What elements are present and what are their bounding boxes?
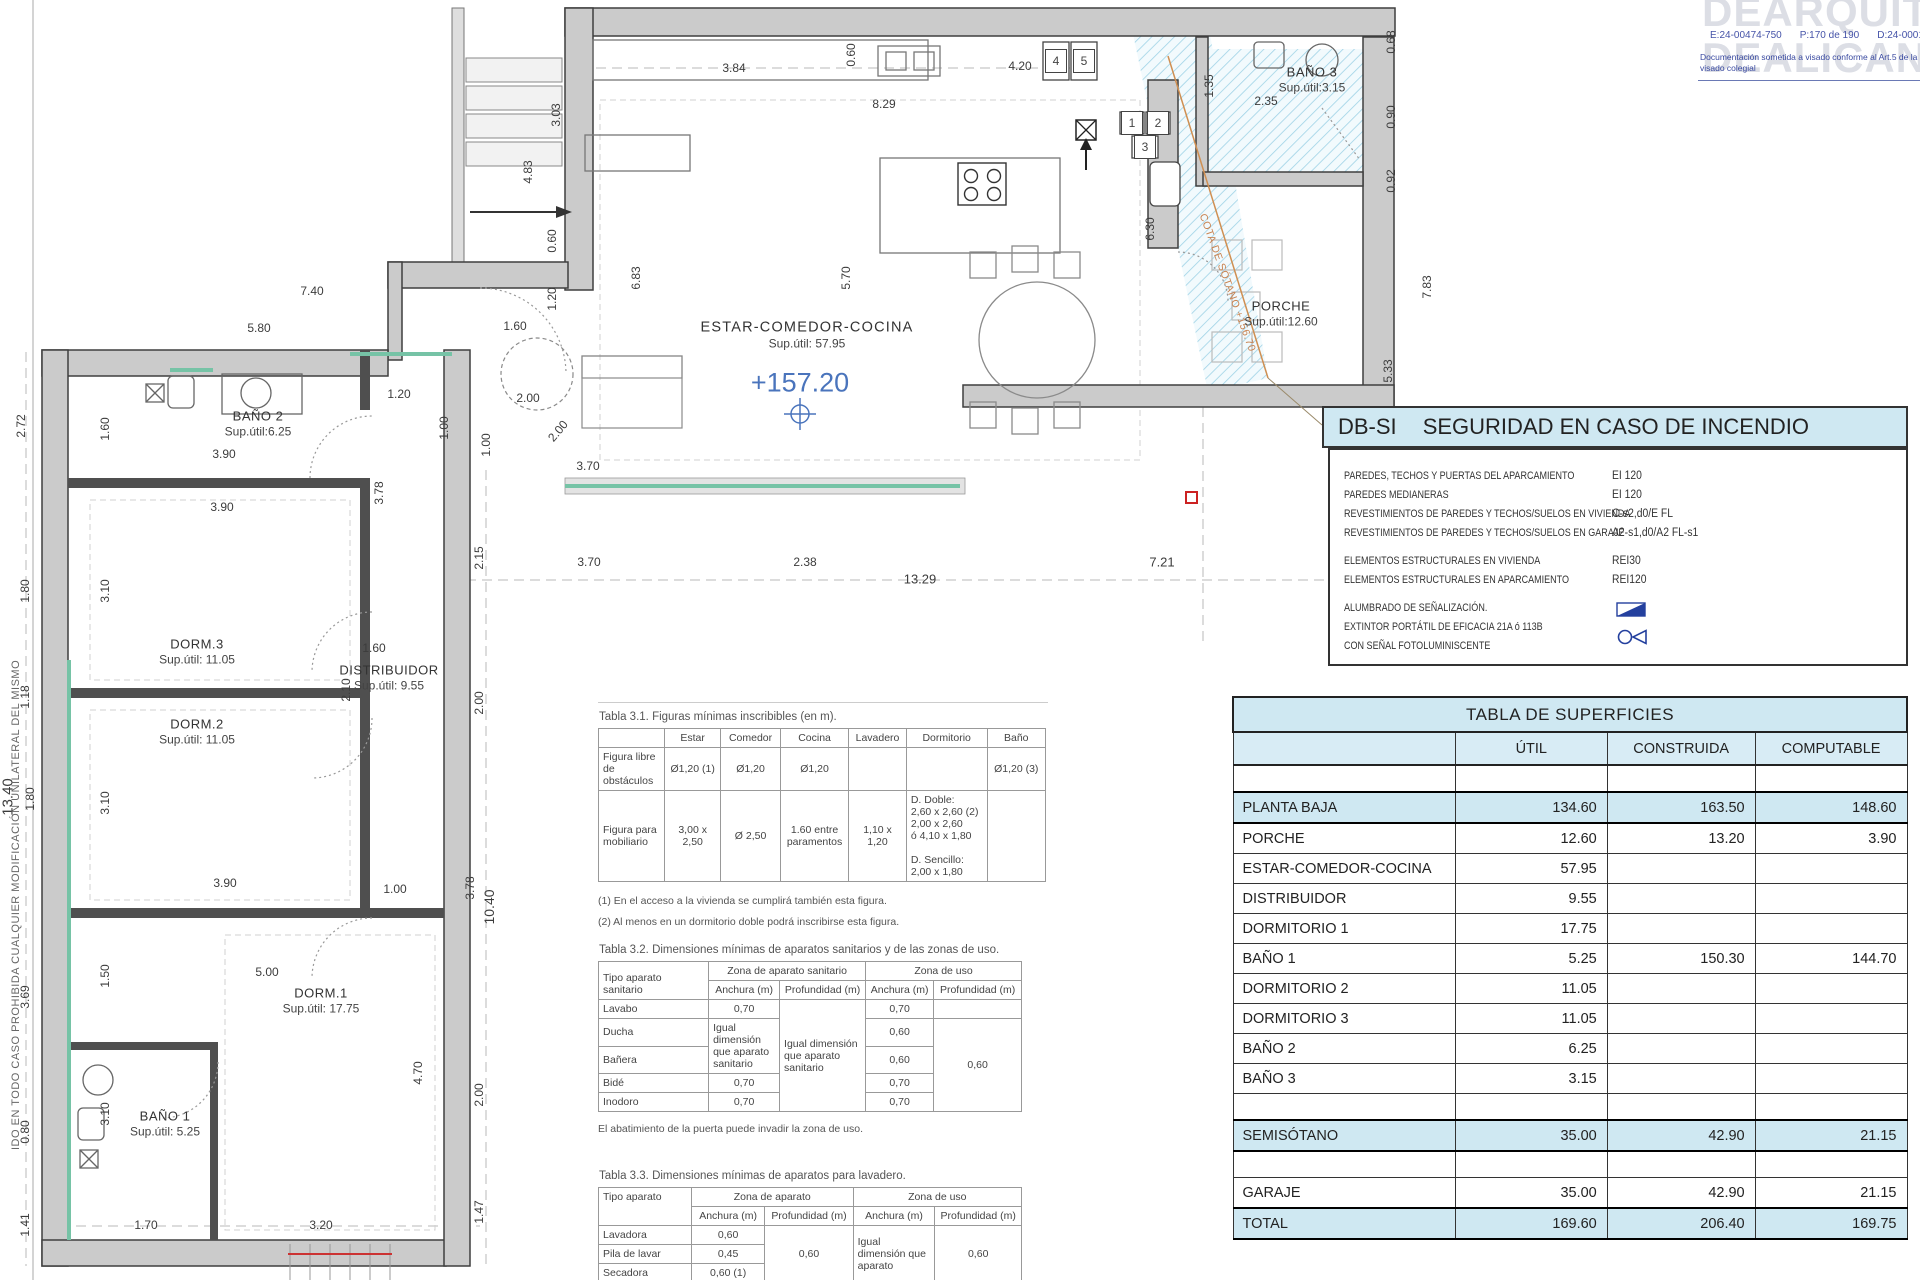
dbsi-code: DB-SI [1338,414,1397,440]
room-label: BAÑO 3Sup.útil:3.15 [1279,64,1346,95]
room-label: BAÑO 2Sup.útil:6.25 [225,408,292,439]
room-area: Sup.útil: 57.95 [700,337,913,352]
room-area: Sup.útil:3.15 [1279,81,1346,96]
dbsi-row: REVESTIMIENTOS DE PAREDES Y TECHOS/SUELO… [1344,527,1906,546]
room-name: BAÑO 3 [1279,64,1346,80]
room-label: BAÑO 1Sup.útil: 5.25 [130,1108,200,1139]
legal-margin-text: IDO EN TODO CASO PROHIBIDA CUALQUIER MOD… [10,660,22,1150]
dimension-label: 0.60 [545,229,559,252]
dbsi-row: CON SEÑAL FOTOLUMINISCENTE [1344,640,1906,659]
dimension-label: 7.83 [1420,275,1434,298]
dimension-label: 0.92 [1384,169,1398,192]
dimension-label: 4.70 [411,1061,425,1084]
visa-note-2: visado colegial [1700,63,1920,74]
dimension-label: 1.00 [437,416,451,439]
appliance-number-tag: 3 [1134,135,1156,159]
dimension-label: 1.80 [23,787,37,810]
dimension-label: 1.60 [362,641,385,655]
table-row: PLANTA BAJA134.60163.50148.60 [1233,792,1907,823]
table-row: DISTRIBUIDOR9.55 [1233,884,1907,914]
table-row: GARAJE35.0042.9021.15 [1233,1178,1907,1209]
dimension-label: 2.38 [793,555,816,569]
dimension-label: 3.10 [98,791,112,814]
dimension-label: 3.90 [212,447,235,461]
col-util: ÚTIL [1455,732,1607,765]
room-name: DORM.1 [283,985,360,1001]
code-p: P:170 de 190 [1800,30,1860,41]
stove-icon [958,163,1006,205]
level-crosshair [784,398,816,430]
room-label: DORM.3Sup.útil: 11.05 [159,636,235,667]
tabla-3-2-title: Tabla 3.2. Dimensiones mínimas de aparat… [599,944,1024,956]
dimension-label: 2.00 [472,691,486,714]
dimension-label: 3.78 [372,481,386,504]
dimension-label: 4.20 [1008,59,1031,73]
dimension-label: 7.40 [300,284,323,298]
room-name: ESTAR-COMEDOR-COCINA [700,318,913,336]
floor-plan-sheet: 3.840.604.208.293.034.830.606.835.701.20… [0,0,1920,1280]
dimension-label: 1.60 [98,417,112,440]
dbsi-row: REVESTIMIENTOS DE PAREDES Y TECHOS/SUELO… [1344,508,1906,527]
dimension-label: 3.10 [98,1102,112,1125]
dbsi-panel-title: DB-SI SEGURIDAD EN CASO DE INCENDIO [1322,406,1908,448]
emergency-light-icon [1616,602,1646,623]
table-row [1233,1151,1907,1178]
room-name: DISTRIBUIDOR [339,662,438,678]
tabla-3-3: Tabla 3.3. Dimensiones mínimas de aparat… [598,1170,1024,1280]
table-row: PORCHE12.6013.203.90 [1233,823,1907,854]
dbsi-row-extintor: EXTINTOR PORTÁTIL DE EFICACIA 21A ó 113B [1344,621,1906,640]
dimension-label: 3.10 [98,579,112,602]
dimension-label: 3.20 [309,1218,332,1232]
tabla-3-2: Tabla 3.2. Dimensiones mínimas de aparat… [598,944,1024,1135]
dbsi-heading: SEGURIDAD EN CASO DE INCENDIO [1423,414,1809,440]
table-row: DORMITORIO 211.05 [1233,974,1907,1004]
dimension-label: 2.15 [472,546,486,569]
dimension-label: 5.70 [839,266,853,289]
dimension-label: 0.68 [1384,30,1398,53]
partitions [68,350,444,1240]
dimension-label: 0.90 [1384,105,1398,128]
dimension-label: 2.35 [1254,94,1277,108]
table-row: BAÑO 15.25150.30144.70 [1233,944,1907,974]
room-area: Sup.útil:12.60 [1244,315,1317,330]
tabla-3-1-notes: (1) En el acceso a la vivienda se cumpli… [598,891,1048,933]
dimension-label: 1.20 [387,387,410,401]
kitchen [585,40,1060,253]
dimension-label: 3.90 [210,500,233,514]
room-area: Sup.útil: 11.05 [159,653,235,668]
table-row: SEMISÓTANO35.0042.9021.15 [1233,1120,1907,1151]
table-row: TOTAL169.60206.40169.75 [1233,1208,1907,1239]
room-name: DORM.2 [159,716,235,732]
dimension-label: 5.80 [247,321,270,335]
room-area: Sup.útil: 11.05 [159,733,235,748]
dimension-label: 7.21 [1149,555,1174,570]
dimension-label: 1.00 [479,433,493,456]
dimension-label: 2.72 [14,414,28,437]
table-row [1233,765,1907,792]
appliance-number-tag: 1 [1121,111,1143,135]
dimension-label: 3.90 [213,876,236,890]
dimension-label: 5.33 [1381,359,1395,382]
entry-arrow [470,206,572,218]
dimension-label: 1.41 [18,1213,32,1236]
dbsi-row: ELEMENTOS ESTRUCTURALES EN VIVIENDA REI3… [1344,555,1906,574]
room-name: BAÑO 1 [130,1108,200,1124]
appliance-number-tag: 4 [1045,49,1067,73]
room-label: DISTRIBUIDORSup.útil: 9.55 [339,662,438,693]
table-row: Lavadora 0,60 0,60 Igual dimensión que a… [599,1226,1022,1245]
dimension-label: 5.00 [255,965,278,979]
room-label: ESTAR-COMEDOR-COCINASup.útil: 57.95 [700,318,913,351]
room-area: Sup.útil: 9.55 [339,679,438,694]
surface-table-header: ÚTIL CONSTRUIDA COMPUTABLE [1233,732,1907,765]
level-marker: +157.20 [751,368,849,399]
tabla-3-1-title: Tabla 3.1. Figuras mínimas inscribibles … [599,711,1048,723]
col-computable: COMPUTABLE [1755,732,1907,765]
dimension-label: 1.50 [98,964,112,987]
room-label: PORCHESup.útil:12.60 [1244,298,1317,329]
dbsi-row: ELEMENTOS ESTRUCTURALES EN APARCAMIENTO … [1344,574,1906,593]
room-name: BAÑO 2 [225,408,292,424]
dimension-label: 3.78 [463,876,477,899]
dimension-label: 1.00 [383,882,406,896]
table-row: DORMITORIO 117.75 [1233,914,1907,944]
tabla-3-2-note: El abatimiento de la puerta puede invadi… [598,1123,1024,1135]
surface-table: TABLA DE SUPERFICIES ÚTIL CONSTRUIDA COM… [1232,696,1908,1240]
stairs-top [466,58,562,166]
room-label: DORM.2Sup.útil: 11.05 [159,716,235,747]
code-d: D:24-0001140 [1877,30,1920,41]
extractor-icon [1076,120,1096,170]
visa-codes: E:24-00474-750 P:170 de 190 D:24-0001140 [1710,30,1920,41]
table-row: ESTAR-COMEDOR-COCINA57.95 [1233,854,1907,884]
room-name: PORCHE [1244,298,1317,314]
table-row: Figura para mobiliario 3,00 x 2,50 Ø 2,5… [599,791,1046,882]
dimension-label: 1.70 [134,1218,157,1232]
tabla-3-3-title: Tabla 3.3. Dimensiones mínimas de aparat… [599,1170,1024,1182]
architect-stamp: DEARQUITEC DEALICANTE E:24-00474-750 P:1… [1698,0,1920,92]
dimension-label: 3.70 [576,459,599,473]
table-row: BAÑO 33.15 [1233,1064,1907,1094]
dimension-label: 1.20 [545,287,559,310]
dbsi-row: PAREDES MEDIANERAS EI 120 [1344,489,1906,508]
room-name: DORM.3 [159,636,235,652]
dimension-label: 13.29 [904,572,937,587]
table-row [1233,1094,1907,1121]
table-row: BAÑO 26.25 [1233,1034,1907,1064]
dimension-label: 2.00 [472,1083,486,1106]
dbsi-row: PAREDES, TECHOS Y PUERTAS DEL APARCAMIEN… [1344,470,1906,489]
dimension-label: 1.80 [18,579,32,602]
dimension-label: 2.00 [516,391,539,405]
appliance-number-tag: 5 [1073,49,1095,73]
tabla-3-1: Tabla 3.1. Figuras mínimas inscribibles … [598,702,1048,933]
appliance-number-tag: 2 [1147,111,1169,135]
room-area: Sup.útil: 17.75 [283,1002,360,1017]
dimension-label: 1.60 [503,319,526,333]
room-area: Sup.útil: 5.25 [130,1125,200,1140]
dbsi-row-light: ALUMBRADO DE SEÑALIZACIÓN. [1344,602,1906,621]
dimension-label: 3.84 [722,61,745,75]
code-e: E:24-00474-750 [1710,30,1782,41]
dimension-label: 3.70 [577,555,600,569]
room-area: Sup.útil:6.25 [225,425,292,440]
col-construida: CONSTRUIDA [1607,732,1755,765]
room-label: DORM.1Sup.útil: 17.75 [283,985,360,1016]
dimension-label: 3.03 [549,103,563,126]
dimension-label: 4.83 [521,160,535,183]
dimension-label: 6.83 [629,266,643,289]
surface-table-title: TABLA DE SUPERFICIES [1233,697,1907,732]
dimension-label: 10.40 [481,889,497,924]
table-row: Lavabo 0,70 Igual dimensión que aparato … [599,1000,1022,1019]
dbsi-panel: PAREDES, TECHOS Y PUERTAS DEL APARCAMIEN… [1328,448,1908,666]
divider [1698,80,1920,81]
dimension-label: 6.30 [1143,217,1157,240]
table-row: Figura libre de obstáculos Ø1,20 (1) Ø1,… [599,748,1046,791]
dimension-label: 8.29 [872,97,895,111]
dimension-label: 0.60 [844,43,858,66]
table-row: DORMITORIO 311.05 [1233,1004,1907,1034]
visa-notes: Documentación sometida a visado conforme… [1700,52,1920,74]
dimension-label: 1.35 [1202,74,1216,97]
visa-note-1: Documentación sometida a visado conforme… [1700,52,1920,63]
dimension-label: 1.47 [472,1200,486,1223]
